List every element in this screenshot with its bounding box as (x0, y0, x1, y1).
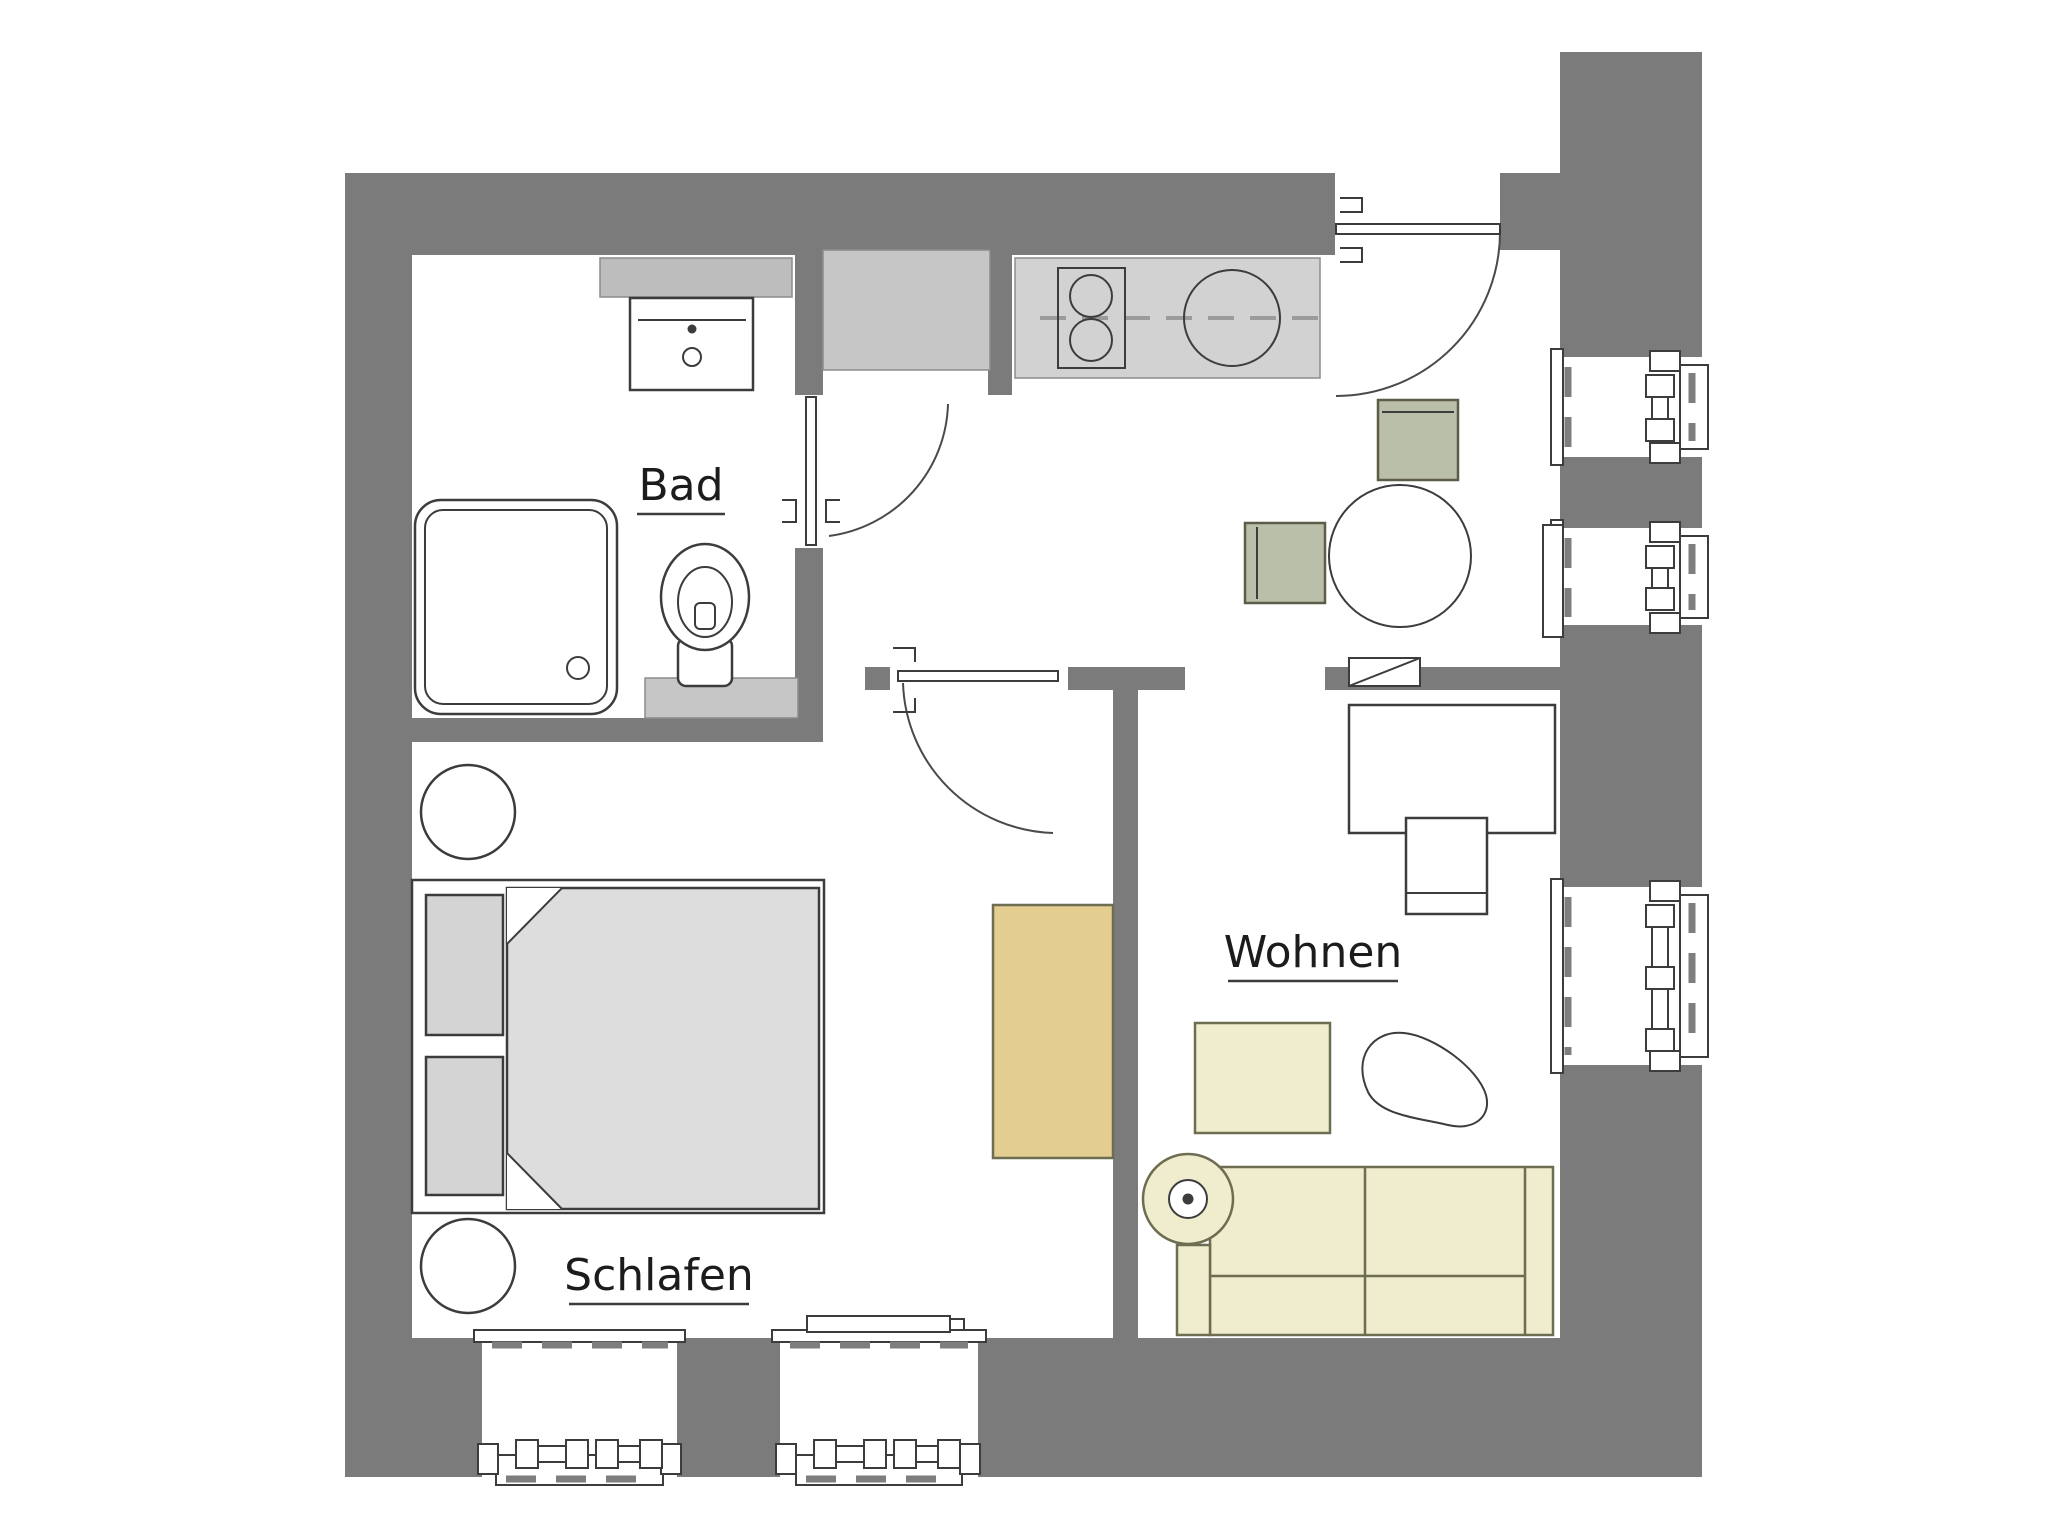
radiator-cap (661, 1444, 681, 1474)
wall-bath-right-upper (795, 255, 823, 395)
desk (1349, 705, 1555, 833)
wall-right-3 (1560, 625, 1702, 887)
wall-top-right-arm (1500, 173, 1560, 250)
radiator-valve (516, 1440, 538, 1468)
door-hinge-icon (1340, 248, 1362, 262)
radiator-cap (1650, 881, 1680, 901)
window-sill (474, 1330, 685, 1342)
radiator-cap (1650, 613, 1680, 633)
radiator-cap (960, 1444, 980, 1474)
radiator-valve (814, 1440, 836, 1468)
radiator-cap (1650, 443, 1680, 463)
wall-top-right-block (1560, 52, 1702, 357)
stool-bottom (421, 1219, 515, 1313)
kitchen (823, 250, 1320, 378)
radiator-bar (618, 1446, 642, 1462)
radiator-valve (596, 1440, 618, 1468)
window-bench-tab (950, 1319, 964, 1330)
radiator-bar (1652, 927, 1668, 967)
radiator-bar (1652, 397, 1668, 419)
radiator-bar (1652, 568, 1668, 588)
wall-bottom-2 (677, 1338, 780, 1477)
radiator-valve (1646, 588, 1674, 610)
radiator-cap (478, 1444, 498, 1474)
washbasin (630, 298, 753, 390)
radiator-bar (916, 1446, 940, 1462)
window-sill (1551, 349, 1563, 465)
floor-lamp (1143, 1154, 1233, 1244)
window-bench (807, 1316, 950, 1332)
wall-bath-right-lower (795, 548, 823, 742)
pillow (426, 895, 503, 1035)
radiator-valve (1646, 905, 1674, 927)
floor-plan: Bad Wohnen Schlafen (0, 0, 2048, 1538)
dining-chair-top (1378, 400, 1458, 480)
door-leaf (806, 397, 816, 545)
pillow (426, 1057, 503, 1195)
kitchen-cabinet (823, 250, 990, 370)
radiator-valve (566, 1440, 588, 1468)
floor-plan-drawing: Bad Wohnen Schlafen (0, 0, 2048, 1538)
side-table-organic (1362, 1033, 1487, 1127)
wardrobe (993, 905, 1113, 1158)
radiator-cap (1650, 522, 1680, 542)
wall-divider-bed-living (1113, 690, 1138, 1338)
radiator-valve (894, 1440, 916, 1468)
wall-bedroom-door-pillar (865, 667, 890, 690)
label-living: Wohnen (1224, 927, 1403, 978)
bedroom (412, 648, 1113, 1313)
floor-cushion (1195, 1023, 1330, 1133)
bedroom-door (893, 648, 1058, 833)
radiator-valve (640, 1440, 662, 1468)
window-sill (1551, 879, 1563, 1073)
double-bed (412, 880, 824, 1213)
sideboard (1543, 525, 1563, 637)
radiator-bar (538, 1446, 566, 1462)
radiator-valve (1646, 967, 1674, 989)
bath-shelf (600, 258, 792, 297)
radiator-valve (1646, 546, 1674, 568)
shower (415, 500, 617, 714)
round-table (1329, 485, 1471, 627)
radiator-valve (864, 1440, 886, 1468)
radiator-cap (1650, 351, 1680, 371)
door-hinge-icon (782, 500, 796, 522)
wall-bottom-1 (345, 1338, 482, 1477)
radiator-cap (776, 1444, 796, 1474)
radiator-valve (938, 1440, 960, 1468)
label-bathroom: Bad (638, 460, 723, 511)
sofa-armrest (1177, 1245, 1210, 1335)
door-leaf (898, 671, 1058, 681)
door-hinge-icon (893, 648, 915, 662)
radiator-valve (1646, 375, 1674, 397)
wall-left (345, 173, 412, 1477)
label-bedroom: Schlafen (564, 1250, 754, 1301)
bath-door (782, 397, 948, 545)
wall-top (345, 173, 1335, 255)
entry-door (1336, 198, 1500, 396)
stool-top (421, 765, 515, 859)
wall-bath-bottom (412, 718, 823, 742)
radiator-cap (1650, 1051, 1680, 1071)
wall-kitchen-pillar (988, 248, 1012, 395)
radiator-bar (1652, 989, 1668, 1029)
door-hinge-icon (826, 500, 840, 522)
radiator-valve (1646, 1029, 1674, 1051)
living-room (1143, 705, 1555, 1335)
door-leaf (1336, 224, 1500, 234)
wall-unit-marker (1349, 658, 1420, 686)
desk-chair (1406, 818, 1487, 914)
wall-hall-1 (1068, 667, 1185, 690)
radiator-valve (1646, 419, 1674, 441)
toilet (661, 544, 749, 686)
dining-chair-left (1245, 523, 1325, 603)
wall-right-2 (1560, 457, 1702, 528)
wall-bottom-3 (978, 1338, 1702, 1477)
radiator-bar (836, 1446, 864, 1462)
door-hinge-icon (1340, 198, 1362, 212)
mattress (507, 888, 819, 1209)
